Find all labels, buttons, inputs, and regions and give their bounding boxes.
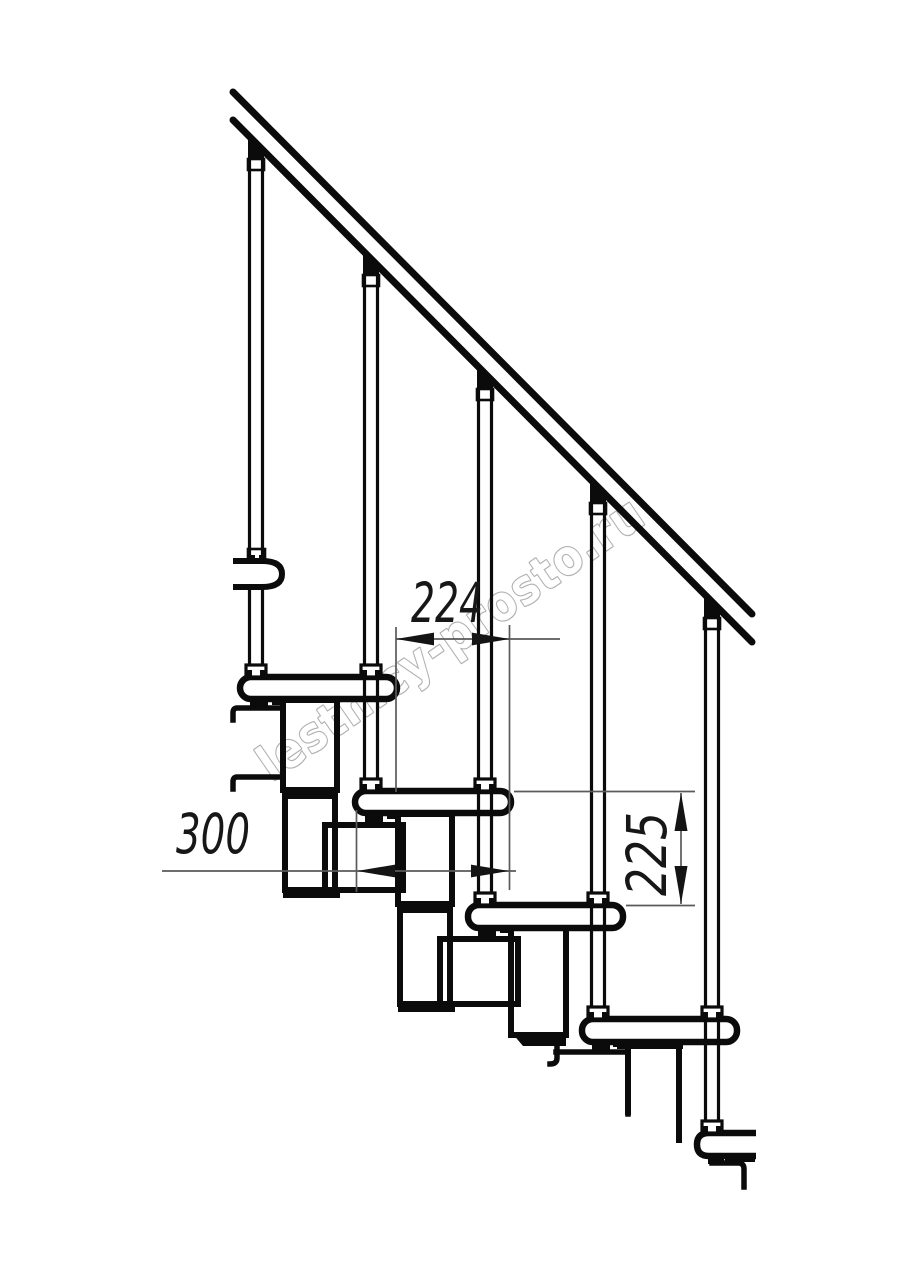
tread-3: [468, 905, 623, 928]
dimension-224-label: 224: [411, 571, 483, 635]
staircase-technical-drawing: lestnicy-prosto.ru: [0, 0, 914, 1280]
tread-4: [582, 1019, 737, 1042]
baluster-1: [233, 138, 282, 677]
tread-5: [697, 1133, 756, 1156]
dimension-300-label: 300: [176, 802, 250, 866]
rail-end-bracket: [233, 561, 282, 587]
dimension-225-label: 225: [615, 812, 679, 896]
stringer-module-4: [592, 1040, 683, 1143]
tread-2: [355, 791, 511, 813]
baluster-5: [702, 597, 722, 1133]
drawing-canvas: lestnicy-prosto.ru: [0, 0, 914, 1280]
tread-1: [240, 677, 397, 699]
stringer-module-chain: [250, 698, 755, 1187]
arrow-left: [357, 865, 395, 878]
